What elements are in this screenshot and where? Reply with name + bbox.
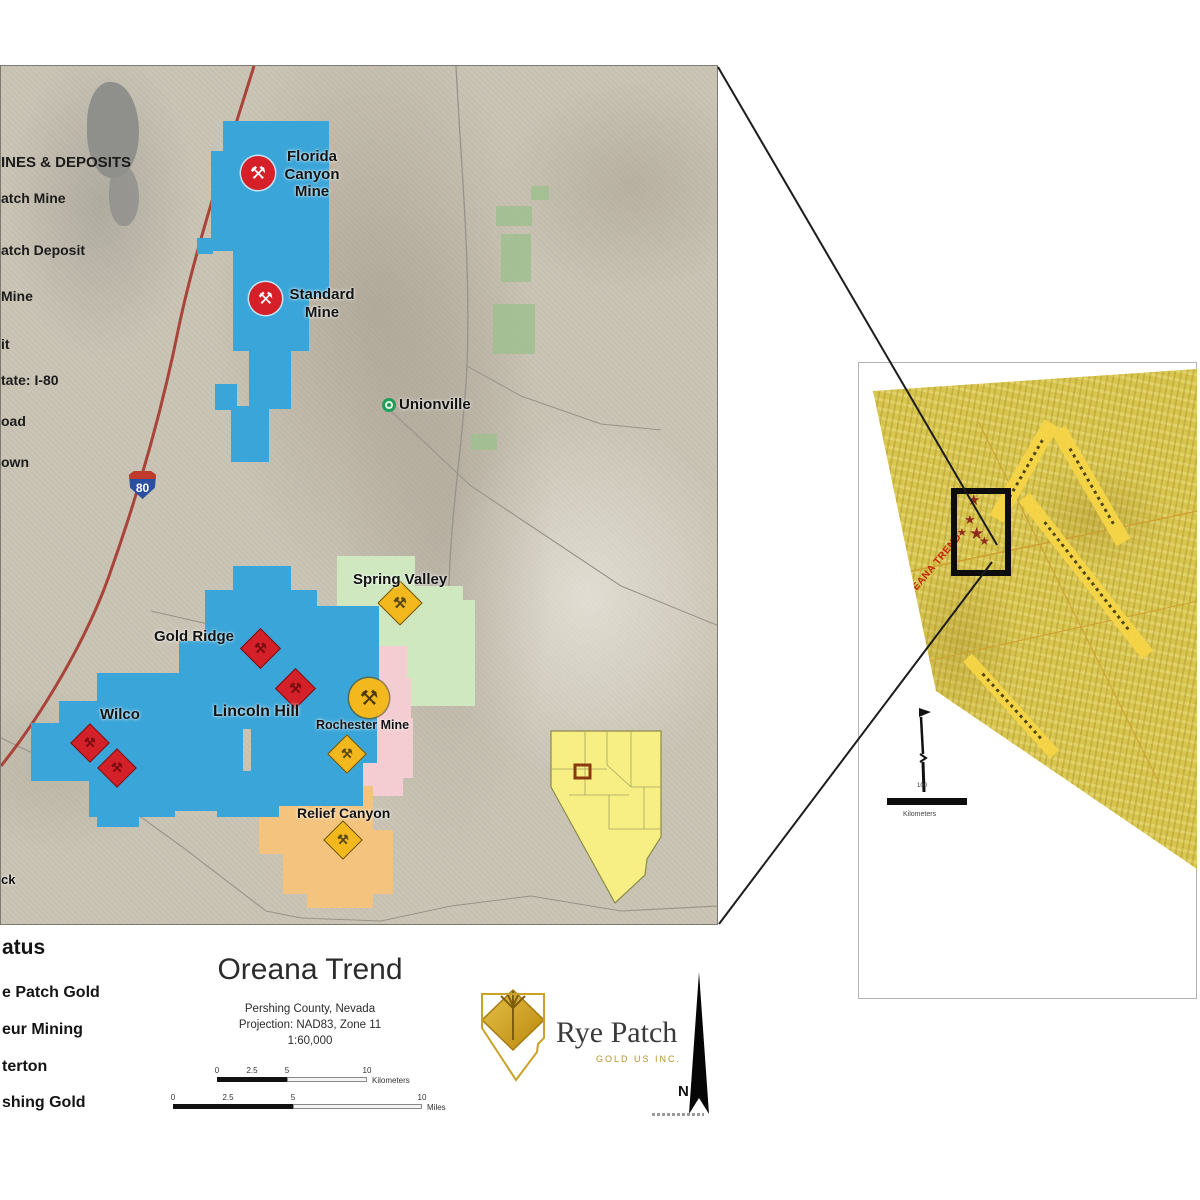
claims-relief-canyon (307, 876, 373, 908)
label-florida-canyon-mine: Florida Canyon Mine (277, 148, 347, 201)
status-legend-title: atus (2, 936, 45, 960)
legend-item: own (1, 454, 29, 470)
north-arrow-icon (686, 972, 712, 1118)
map-subtitle-county: Pershing County, Nevada (185, 1003, 435, 1015)
scalebar-tick: 5 (276, 1066, 298, 1075)
label-relief-canyon: Relief Canyon (297, 805, 390, 822)
map-title: Oreana Trend (185, 953, 435, 987)
label-lincoln-hill: Lincoln Hill (213, 703, 299, 722)
label-wilco: Wilco (100, 706, 140, 724)
mine-icon-rochester: ⚒ (349, 678, 389, 718)
status-legend-item: eur Mining (2, 1021, 83, 1039)
scalebar-unit: Miles (427, 1103, 446, 1112)
legend-item: atch Deposit (1, 242, 85, 258)
legend-item: it (1, 336, 10, 352)
status-legend-item: terton (2, 1058, 47, 1076)
mine-icon-standard: ⚒ (249, 282, 282, 315)
scalebar-tick: 5 (282, 1093, 304, 1102)
legend-item: Mine (1, 288, 33, 304)
map-subtitle-scale: 1:60,000 (185, 1035, 435, 1047)
scalebar-tick: 2.5 (217, 1093, 239, 1102)
legend-item: oad (1, 413, 26, 429)
map-legend: INES & DEPOSITS atch Mine atch Deposit M… (1, 154, 161, 474)
town-icon-unionville (382, 398, 396, 412)
claims-spring-valley (431, 600, 475, 652)
legend-item: tate: I-80 (1, 372, 59, 388)
scalebar-tick: 10 (356, 1066, 378, 1075)
star-icon: ★ (967, 493, 980, 508)
scalebar-tick: 0 (162, 1093, 184, 1102)
inset-scalebar-tick: 100 (917, 783, 927, 789)
claims-blue-small (197, 238, 213, 254)
scalebar-tick: 2.5 (241, 1066, 263, 1075)
claims-lincoln-hill (217, 771, 279, 817)
claims-standard (249, 351, 291, 409)
scalebar-bar (217, 1077, 287, 1082)
star-icon: ★ (979, 535, 990, 547)
claims-blue-small (215, 384, 237, 410)
scalebar-unit: Kilometers (372, 1076, 410, 1085)
scalebar-tick: 10 (411, 1093, 433, 1102)
rye-patch-logo: Rye Patch GOLD US INC. (468, 986, 718, 1121)
inset-scalebar-bar (887, 798, 967, 805)
map-subtitle-projection: Projection: NAD83, Zone 11 (185, 1019, 435, 1031)
label-edge-fragment: ck (1, 872, 15, 887)
main-map: ⚒ ⚒ ⚒ ⚒ ⚒ ⚒ ⚒ ⚒ ⚒ ⚒ Florida Canyon Mine … (0, 65, 718, 925)
legend-title: INES & DEPOSITS (1, 154, 161, 171)
star-icon: ★ (957, 528, 967, 539)
label-standard-mine: Standard Mine (285, 286, 359, 321)
scalebar-tick: 0 (206, 1066, 228, 1075)
mine-icon-florida-canyon: ⚒ (241, 156, 275, 190)
label-gold-ridge: Gold Ridge (154, 628, 234, 646)
map-figure: ⚒ ⚒ ⚒ ⚒ ⚒ ⚒ ⚒ ⚒ ⚒ ⚒ Florida Canyon Mine … (0, 0, 1200, 1200)
status-legend-item: shing Gold (2, 1094, 86, 1112)
claims-wilco (97, 791, 139, 827)
scalebar-bar (293, 1104, 422, 1109)
nevada-inset-panel: OREANA TREND ★ ★ ★ ★ ★ 100 Kilometers (858, 362, 1197, 999)
logo-wordmark: Rye Patch (556, 1016, 677, 1049)
label-rochester-mine: Rochester Mine (316, 718, 409, 733)
logo-tagline: GOLD US INC. (596, 1054, 681, 1064)
legend-item: atch Mine (1, 190, 66, 206)
inset-scalebar-unit: Kilometers (903, 811, 936, 818)
fine-print (652, 1113, 704, 1116)
scalebar-bar (173, 1104, 293, 1109)
label-spring-valley: Spring Valley (353, 571, 447, 589)
status-legend-item: e Patch Gold (2, 984, 100, 1002)
label-unionville: Unionville (399, 396, 471, 414)
scalebar-bar (287, 1077, 367, 1082)
claims-standard (231, 406, 269, 462)
nevada-mini-locator (549, 729, 663, 905)
north-label: N (678, 1083, 689, 1100)
